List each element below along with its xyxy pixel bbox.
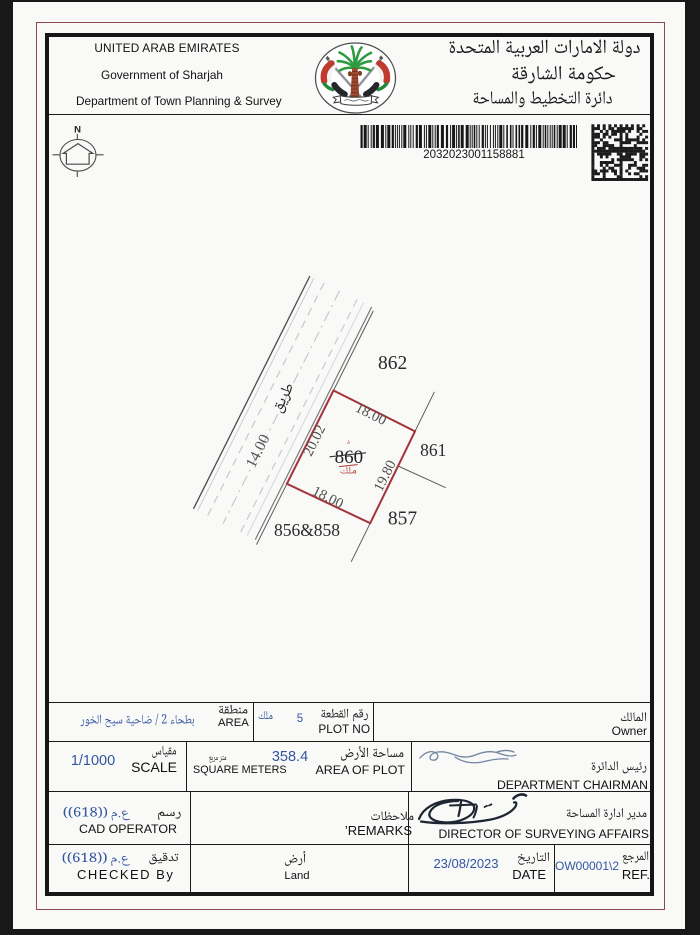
svg-text:857: 857 — [388, 508, 418, 529]
svg-text:862: 862 — [378, 353, 407, 374]
svg-text:19.80: 19.80 — [371, 458, 400, 494]
svg-text:18.00: 18.00 — [310, 483, 346, 512]
svg-text:856&858: 856&858 — [274, 520, 340, 540]
svg-text:861: 861 — [420, 440, 446, 460]
svg-text:18.00: 18.00 — [353, 400, 389, 429]
svg-text:860: 860 — [335, 447, 364, 468]
